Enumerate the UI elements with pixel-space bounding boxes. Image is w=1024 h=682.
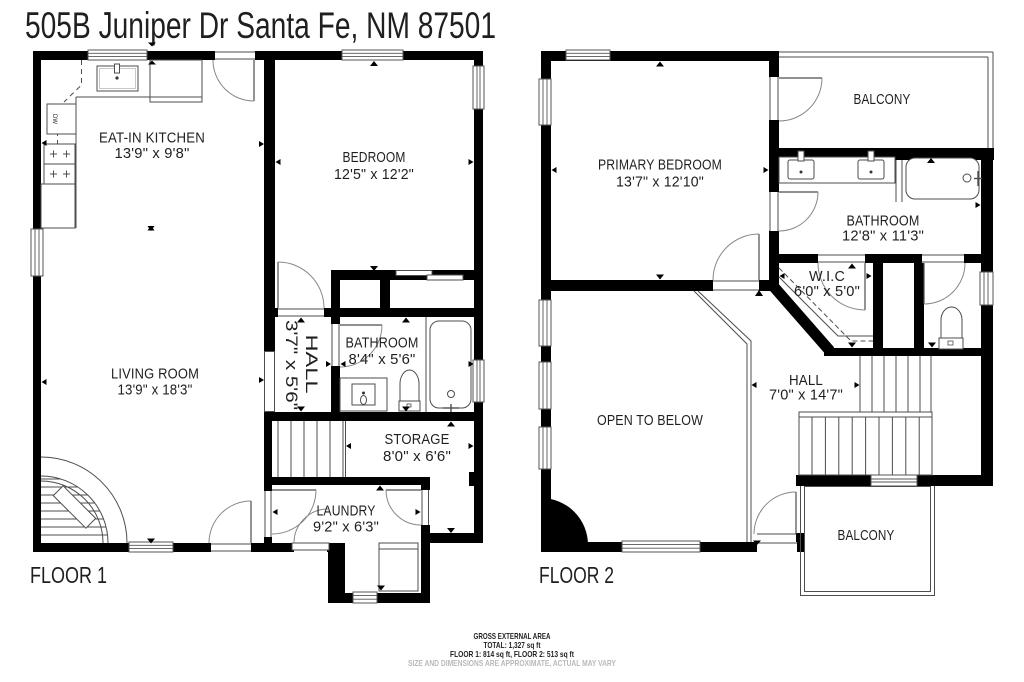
svg-text:3'7" x 5'6": 3'7" x 5'6" <box>282 320 301 410</box>
svg-text:7'0" x 14'7": 7'0" x 14'7" <box>769 387 843 404</box>
svg-text:FLOOR 1: FLOOR 1 <box>30 562 107 588</box>
svg-text:6'0" x 5'0": 6'0" x 5'0" <box>794 283 860 300</box>
svg-text:EAT-IN KITCHEN: EAT-IN KITCHEN <box>99 130 205 147</box>
svg-text:13'9" x 9'8": 13'9" x 9'8" <box>115 145 190 162</box>
svg-text:STORAGE: STORAGE <box>385 431 450 448</box>
svg-text:SIZE AND DIMENSIONS ARE APPROX: SIZE AND DIMENSIONS ARE APPROXIMATE, ACT… <box>408 658 616 668</box>
svg-text:BALCONY: BALCONY <box>838 527 895 544</box>
svg-text:505B Juniper Dr Santa Fe, NM 8: 505B Juniper Dr Santa Fe, NM 87501 <box>25 5 496 46</box>
svg-text:BEDROOM: BEDROOM <box>343 149 406 166</box>
svg-text:OPEN TO BELOW: OPEN TO BELOW <box>597 412 704 429</box>
svg-text:8'4" x 5'6": 8'4" x 5'6" <box>349 351 416 368</box>
svg-text:HALL: HALL <box>302 335 321 394</box>
svg-text:LIVING ROOM: LIVING ROOM <box>111 366 199 383</box>
svg-text:DW: DW <box>51 114 57 124</box>
svg-text:8'0" x 6'6": 8'0" x 6'6" <box>383 448 451 465</box>
svg-text:12'8" x 11'3": 12'8" x 11'3" <box>842 228 924 245</box>
svg-text:9'2" x 6'3": 9'2" x 6'3" <box>313 519 379 536</box>
svg-text:BATHROOM: BATHROOM <box>346 335 419 352</box>
svg-text:LAUNDRY: LAUNDRY <box>317 503 376 520</box>
svg-text:13'9" x 18'3": 13'9" x 18'3" <box>118 382 193 399</box>
svg-text:12'5" x 12'2": 12'5" x 12'2" <box>334 166 414 183</box>
svg-text:BALCONY: BALCONY <box>854 91 911 108</box>
svg-text:PRIMARY BEDROOM: PRIMARY BEDROOM <box>598 157 722 174</box>
svg-text:FLOOR 2: FLOOR 2 <box>539 562 614 588</box>
svg-text:13'7" x 12'10": 13'7" x 12'10" <box>616 174 704 191</box>
